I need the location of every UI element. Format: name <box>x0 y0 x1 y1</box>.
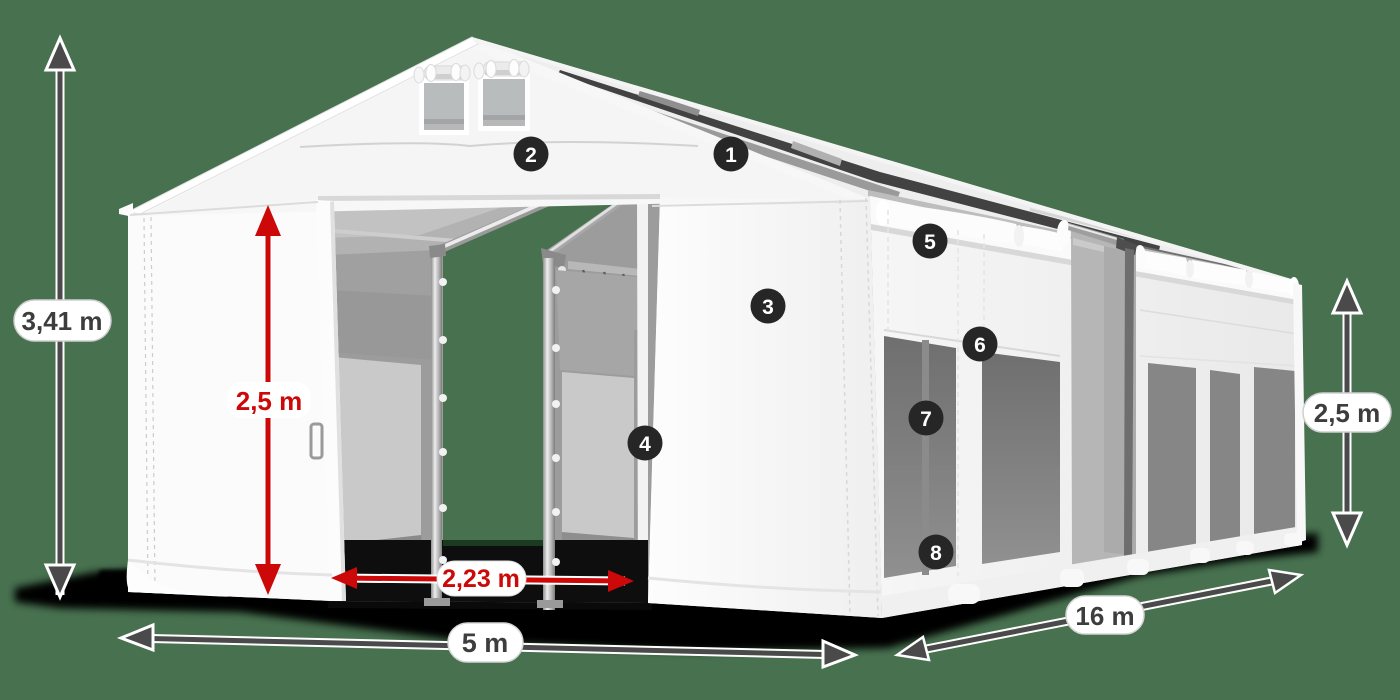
svg-text:8: 8 <box>930 542 942 565</box>
svg-text:2: 2 <box>525 144 537 167</box>
svg-text:1: 1 <box>725 144 737 167</box>
svg-text:7: 7 <box>920 408 932 431</box>
svg-text:2,23 m: 2,23 m <box>442 565 520 593</box>
svg-text:2,5 m: 2,5 m <box>1314 398 1381 428</box>
svg-text:6: 6 <box>974 334 986 357</box>
svg-text:5: 5 <box>924 231 936 254</box>
svg-text:5 m: 5 m <box>462 628 509 658</box>
svg-text:4: 4 <box>639 433 651 456</box>
svg-text:3,41 m: 3,41 m <box>22 306 103 336</box>
svg-text:2,5 m: 2,5 m <box>236 386 303 416</box>
svg-text:16 m: 16 m <box>1075 601 1134 631</box>
svg-text:3: 3 <box>762 296 774 319</box>
